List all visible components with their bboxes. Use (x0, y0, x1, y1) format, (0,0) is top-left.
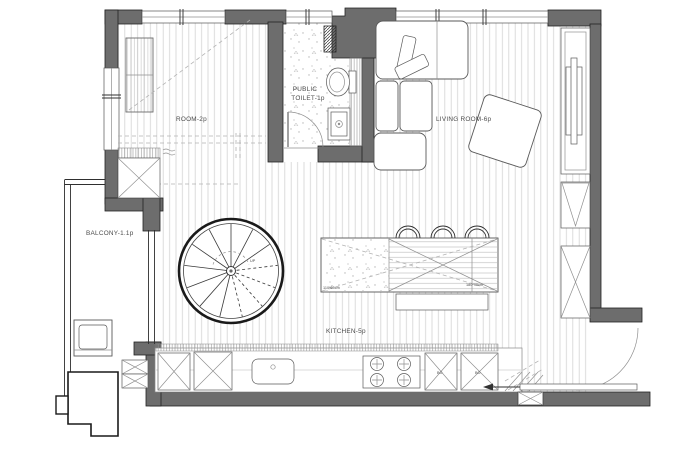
tv-console (561, 28, 590, 174)
oven-label: BO (437, 371, 443, 375)
balcony-label: BALCONY-1.1p (86, 230, 134, 237)
wall-bottom (150, 392, 650, 406)
island-bench (396, 294, 488, 310)
oven-label: BO (475, 371, 481, 375)
room-label: ROOM-2p (176, 116, 207, 123)
balcony-inner-railing (149, 230, 155, 344)
cooktop (363, 356, 420, 388)
balcony (56, 180, 155, 437)
door-leaf (520, 384, 637, 390)
living-room-label: LIVING ROOM-6p (436, 116, 492, 123)
appliance-box (194, 352, 232, 390)
island-stone-top (322, 239, 389, 291)
window-top-room (142, 9, 225, 25)
counter-backsplash (156, 344, 498, 351)
wall-left-upper (105, 10, 118, 70)
spiral-staircase: UP (179, 219, 283, 323)
washing-machine (74, 320, 112, 356)
corner-cabinet (561, 182, 590, 228)
floor-plan-canvas: UP 110*60cm 180*90cm (0, 0, 700, 474)
wall-toilet-left (268, 22, 283, 162)
shaft-access-hatch (324, 26, 336, 52)
balcony-outer-railing (65, 180, 71, 396)
stairs-up-label: UP (250, 259, 256, 263)
floor-plan: UP 110*60cm 180*90cm (0, 0, 700, 474)
toilet-bowl (327, 68, 357, 96)
appliance-box (158, 353, 190, 390)
built-in-oven: BO (425, 353, 457, 390)
balcony-top-railing (65, 180, 106, 185)
wall-nook-step (143, 198, 160, 231)
toilet-label-line2: TOILET-1p (291, 95, 325, 102)
annex-notch (56, 396, 68, 414)
kitchen-counter: BO BO (155, 344, 522, 392)
wall-left-mid (105, 146, 118, 204)
tall-cabinet (561, 246, 590, 318)
threshold-box (518, 392, 543, 405)
island-dim-left: 110*60cm (323, 286, 340, 290)
kitchen-label: KITCHEN-5p (326, 328, 366, 335)
toilet-sink (328, 108, 350, 140)
window-top-toilet (286, 9, 332, 25)
window-left (102, 68, 121, 150)
balcony-cabinet-boxes (122, 360, 148, 388)
wall-toilet-right (362, 56, 374, 162)
toilet-label-line1: PUBLIC (293, 86, 318, 93)
island-dim-right: 180*90cm (466, 283, 483, 287)
wall-right-step (590, 308, 642, 322)
kitchen-sink (252, 359, 294, 384)
balcony-lower-annex (68, 372, 118, 436)
wall-right (590, 24, 601, 310)
wardrobe (126, 38, 153, 112)
